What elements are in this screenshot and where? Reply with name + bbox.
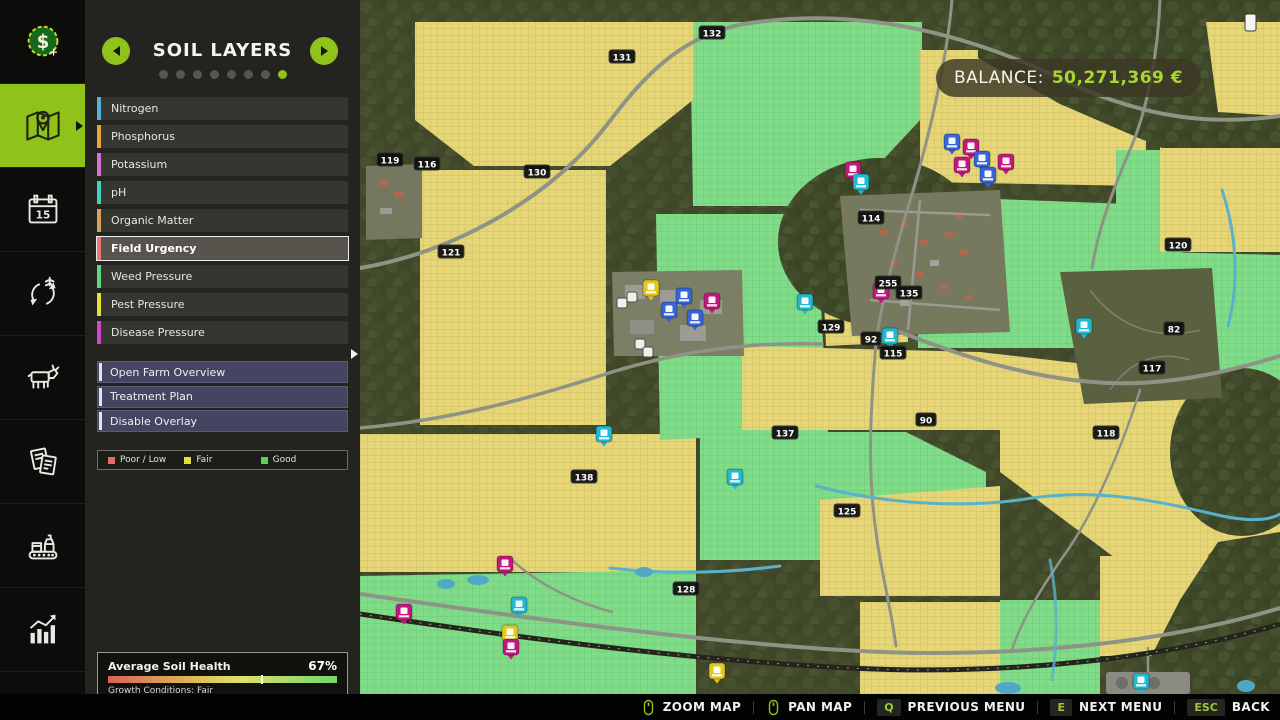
key-badge: Q [877, 699, 900, 716]
field-number-label[interactable]: 128 [673, 582, 699, 596]
action-button[interactable]: Open Farm Overview [97, 361, 348, 383]
sidebar-item-map[interactable] [0, 84, 85, 168]
layer-row[interactable]: Disease Pressure [97, 321, 348, 344]
layer-label: pH [111, 186, 126, 199]
layer-row[interactable]: Field Urgency [97, 237, 348, 260]
field-number-label[interactable]: 118 [1093, 426, 1119, 440]
field-number-label[interactable]: 82 [1164, 322, 1184, 336]
layer-color-bar [97, 265, 101, 288]
panel-expand-arrow-icon[interactable] [351, 349, 358, 359]
map-terrain [360, 0, 1280, 694]
map-canvas[interactable]: 132 131 119 116 130 121 114 255 135 129 … [360, 0, 1280, 694]
action-accent-bar [99, 412, 102, 430]
layer-row[interactable]: Organic Matter [97, 209, 348, 232]
control-previous-menu[interactable]: QPREVIOUS MENU [877, 699, 1025, 716]
layer-list: Nitrogen Phosphorus Potassium pH Organic… [97, 97, 348, 349]
soil-health-value: 67% [308, 659, 337, 673]
action-accent-bar [99, 388, 102, 406]
layer-color-bar [97, 209, 101, 232]
legend-label: Poor / Low [120, 455, 166, 465]
layer-label: Pest Pressure [111, 298, 185, 311]
field-number-label[interactable]: 131 [609, 50, 635, 64]
svg-text:128: 128 [677, 586, 696, 596]
sidebar-item-calendar[interactable]: 15 [0, 168, 85, 252]
action-label: Disable Overlay [110, 415, 197, 428]
layer-row[interactable]: Phosphorus [97, 125, 348, 148]
finances-icon: $ + [20, 19, 66, 65]
legend-label: Fair [196, 455, 212, 465]
soil-health-label: Average Soil Health [108, 660, 231, 673]
field-number-label[interactable]: 132 [699, 26, 725, 40]
sidebar-item-statistics[interactable] [0, 588, 85, 672]
layer-color-bar [97, 293, 101, 316]
page-dot [261, 70, 270, 79]
poi-marker-white[interactable] [643, 347, 653, 357]
legend-swatch [184, 457, 191, 464]
crop-rotation-icon [20, 271, 66, 317]
field-number-label[interactable]: 138 [571, 470, 597, 484]
layer-row[interactable]: Pest Pressure [97, 293, 348, 316]
field-number-label[interactable]: 121 [438, 245, 464, 259]
control-zoom-map[interactable]: ZOOM MAP [641, 699, 741, 716]
divider [864, 701, 865, 714]
divider [1174, 701, 1175, 714]
controls-bar: ZOOM MAP PAN MAPQPREVIOUS MENUENEXT MENU… [0, 694, 1280, 720]
svg-text:135: 135 [900, 290, 919, 300]
legend-label: Good [273, 455, 297, 465]
svg-text:129: 129 [822, 324, 841, 334]
svg-text:82: 82 [1168, 326, 1181, 336]
page-dot [227, 70, 236, 79]
balance-label: BALANCE: [954, 68, 1044, 88]
page-dot [176, 70, 185, 79]
calendar-icon: 15 [20, 187, 66, 233]
control-label: PAN MAP [788, 700, 852, 714]
soil-health-marker [261, 675, 263, 684]
sidebar-item-contracts[interactable] [0, 420, 85, 504]
control-label: BACK [1232, 700, 1270, 714]
field-number-label[interactable]: 120 [1165, 238, 1191, 252]
layer-color-bar [97, 237, 101, 260]
balance-display: BALANCE: 50,271,369 € [936, 59, 1201, 97]
field-number-label[interactable]: 115 [880, 346, 906, 360]
svg-text:255: 255 [879, 280, 898, 290]
svg-text:117: 117 [1143, 365, 1162, 375]
active-notch-icon [76, 121, 83, 131]
overlay-legend: Poor / Low Fair Good [97, 450, 348, 470]
svg-text:125: 125 [838, 508, 857, 518]
layer-label: Weed Pressure [111, 270, 192, 283]
svg-text:130: 130 [528, 169, 547, 179]
layer-color-bar [97, 153, 101, 176]
page-dot [193, 70, 202, 79]
svg-text:137: 137 [776, 430, 795, 440]
svg-text:$: $ [36, 31, 49, 52]
svg-text:+: + [49, 46, 58, 58]
svg-text:92: 92 [865, 336, 878, 346]
sidebar-item-production[interactable] [0, 504, 85, 588]
panel-header: SOIL LAYERS [85, 0, 360, 92]
control-label: NEXT MENU [1079, 700, 1162, 714]
sidebar-item-animals[interactable] [0, 336, 85, 420]
action-list: Open Farm Overview Treatment Plan Disabl… [97, 361, 348, 435]
layer-color-bar [97, 321, 101, 344]
field-number-label[interactable]: 129 [818, 320, 844, 334]
svg-text:131: 131 [613, 54, 632, 64]
svg-text:15: 15 [35, 209, 50, 221]
layer-label: Potassium [111, 158, 167, 171]
layer-color-bar [97, 125, 101, 148]
contracts-icon [20, 439, 66, 485]
soil-health-bar [108, 676, 337, 683]
sidebar-item-finances[interactable]: $ + [0, 0, 85, 84]
svg-text:138: 138 [575, 474, 594, 484]
layer-row[interactable]: Potassium [97, 153, 348, 176]
layer-row[interactable]: pH [97, 181, 348, 204]
game-screen: 132 131 119 116 130 121 114 255 135 129 … [0, 0, 1280, 720]
poi-marker-white[interactable] [627, 292, 637, 302]
layer-label: Nitrogen [111, 102, 158, 115]
legend-swatch [108, 457, 115, 464]
svg-text:120: 120 [1169, 242, 1188, 252]
page-dot [278, 70, 287, 79]
action-label: Treatment Plan [110, 390, 193, 403]
key-badge: E [1050, 699, 1072, 716]
layer-color-bar [97, 97, 101, 120]
poi-marker-white[interactable] [617, 298, 627, 308]
page-dot [210, 70, 219, 79]
action-button[interactable]: Treatment Plan [97, 386, 348, 408]
svg-text:132: 132 [703, 30, 722, 40]
soil-health-row: Average Soil Health 67% [108, 659, 337, 673]
legend-item: Good [261, 455, 337, 465]
field-number-label[interactable]: 125 [834, 504, 860, 518]
sidebar-item-crop-rotation[interactable] [0, 252, 85, 336]
svg-text:114: 114 [862, 215, 881, 225]
action-label: Open Farm Overview [110, 366, 225, 379]
field-number-label[interactable]: 92 [861, 332, 881, 346]
legend-swatch [261, 457, 268, 464]
soil-layers-panel: SOIL LAYERS Nitrogen Phosphorus Potassiu… [85, 0, 360, 720]
animals-icon [20, 355, 66, 401]
page-dots [85, 70, 360, 79]
soil-health-box: Average Soil Health 67% Growth Condition… [97, 652, 348, 698]
control-label: ZOOM MAP [663, 700, 741, 714]
action-button[interactable]: Disable Overlay [97, 410, 348, 432]
world-map[interactable]: 132 131 119 116 130 121 114 255 135 129 … [360, 0, 1280, 694]
svg-text:116: 116 [418, 161, 437, 171]
field-number-label[interactable]: 117 [1139, 361, 1165, 375]
control-back[interactable]: ESCBACK [1187, 699, 1270, 716]
svg-text:118: 118 [1097, 430, 1116, 440]
layer-row[interactable]: Nitrogen [97, 97, 348, 120]
triangle-right-icon [321, 46, 328, 56]
map-icon [18, 101, 68, 151]
svg-text:115: 115 [884, 350, 903, 360]
layer-label: Organic Matter [111, 214, 193, 227]
svg-text:90: 90 [920, 417, 933, 427]
control-pan-map[interactable]: PAN MAP [766, 699, 852, 716]
layer-label: Disease Pressure [111, 326, 205, 339]
field-number-label[interactable]: 114 [858, 211, 884, 225]
page-dot [244, 70, 253, 79]
divider [1037, 701, 1038, 714]
page-dot [159, 70, 168, 79]
svg-text:119: 119 [381, 157, 400, 167]
mouse-zoom-icon [641, 699, 656, 716]
action-accent-bar [99, 363, 102, 381]
svg-text:121: 121 [442, 249, 461, 259]
field-number-label[interactable]: 130 [524, 165, 550, 179]
control-next-menu[interactable]: ENEXT MENU [1050, 699, 1162, 716]
layer-label: Phosphorus [111, 130, 175, 143]
legend-item: Poor / Low [108, 455, 184, 465]
field-number-label[interactable]: 135 [896, 286, 922, 300]
mouse-pan-icon [766, 699, 781, 716]
layer-color-bar [97, 181, 101, 204]
field-number-label[interactable]: 137 [772, 426, 798, 440]
legend-item: Fair [184, 455, 260, 465]
control-label: PREVIOUS MENU [908, 700, 1026, 714]
production-icon [20, 523, 66, 569]
field-number-label[interactable]: 90 [916, 413, 936, 427]
main-menu-rail: $ + 15 [0, 0, 85, 720]
key-badge: ESC [1187, 699, 1225, 716]
statistics-icon [20, 607, 66, 653]
balance-value: 50,271,369 € [1052, 68, 1183, 88]
layer-row[interactable]: Weed Pressure [97, 265, 348, 288]
page-next-button[interactable] [310, 37, 338, 65]
field-number-label[interactable]: 119 [377, 153, 403, 167]
player-vehicle-marker[interactable] [1245, 14, 1256, 31]
field-number-label[interactable]: 116 [414, 157, 440, 171]
divider [753, 701, 754, 714]
layer-label: Field Urgency [111, 242, 196, 255]
